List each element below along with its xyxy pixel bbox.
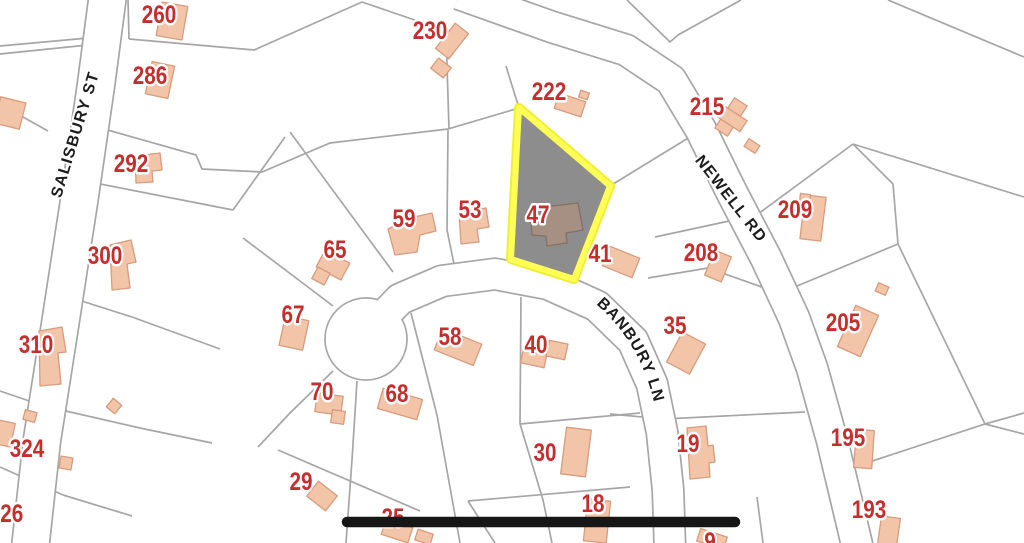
parcel-label-53: 53 bbox=[459, 196, 482, 224]
parcel-label-70: 70 bbox=[311, 378, 334, 406]
parcel-label-68: 68 bbox=[386, 380, 409, 408]
building bbox=[546, 340, 568, 360]
parcel-label-205: 205 bbox=[826, 309, 861, 337]
parcel-label-326: 326 bbox=[0, 500, 23, 528]
parcel-label-65: 65 bbox=[324, 236, 347, 264]
parcel-label-195: 195 bbox=[831, 424, 866, 452]
parcel-label-40: 40 bbox=[525, 331, 548, 359]
building bbox=[23, 410, 37, 423]
parcel-label-19: 19 bbox=[677, 430, 700, 458]
parcel-label-193: 193 bbox=[852, 496, 887, 524]
parcel-label-59: 59 bbox=[393, 205, 416, 233]
parcel-label-230: 230 bbox=[413, 17, 448, 45]
parcel-label-222: 222 bbox=[532, 78, 567, 106]
parcel-map: 2602862923003103243261230222215209208205… bbox=[0, 0, 1024, 543]
parcel-label-208: 208 bbox=[684, 239, 719, 267]
parcel-label-300: 300 bbox=[88, 242, 123, 270]
parcel-label-260: 260 bbox=[142, 1, 177, 29]
parcel-label-324: 324 bbox=[10, 435, 45, 463]
building bbox=[59, 456, 73, 470]
parcel-label-310: 310 bbox=[19, 331, 54, 359]
parcel-label-67: 67 bbox=[282, 301, 305, 329]
parcel-label-215: 215 bbox=[690, 93, 725, 121]
parcel-label-58: 58 bbox=[439, 323, 462, 351]
parcel-label-47: 47 bbox=[527, 201, 550, 229]
parcel-label-209: 209 bbox=[778, 196, 813, 224]
parcel-label-35: 35 bbox=[664, 312, 687, 340]
parcel-label-286: 286 bbox=[133, 62, 168, 90]
parcel-label-292: 292 bbox=[114, 150, 149, 178]
parcel-label-9: 9 bbox=[704, 528, 716, 543]
parcel-label-18: 18 bbox=[582, 490, 605, 518]
parcel-label-41: 41 bbox=[589, 240, 612, 268]
parcel-label-29: 29 bbox=[290, 468, 313, 496]
building bbox=[561, 427, 592, 477]
parcel-label-30: 30 bbox=[534, 439, 557, 467]
parcel-boundary bbox=[128, 0, 129, 39]
map-canvas: 2602862923003103243261230222215209208205… bbox=[0, 0, 1024, 543]
building bbox=[331, 410, 346, 425]
